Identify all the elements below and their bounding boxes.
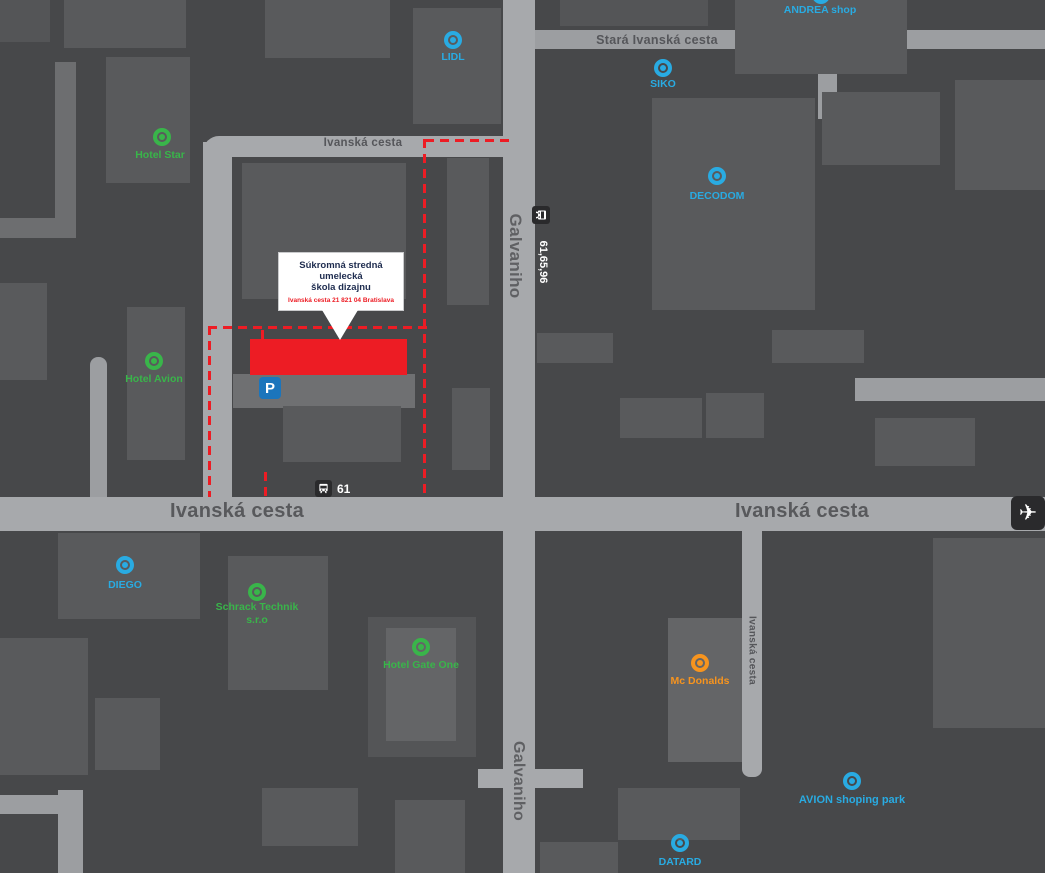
building-diego xyxy=(58,533,200,619)
road-top-left-horizontal xyxy=(0,218,76,238)
map-canvas: Stará Ivanská cesta Ivanská cesta Ivansk… xyxy=(0,0,1045,873)
building-decodom xyxy=(652,98,815,310)
road-top-right-horizontal xyxy=(855,378,1045,401)
route-dash-top xyxy=(425,139,513,142)
building xyxy=(395,800,465,873)
building xyxy=(95,698,160,770)
parking-icon: P xyxy=(259,377,281,399)
building xyxy=(106,57,190,183)
bus-icon xyxy=(318,483,329,494)
building xyxy=(265,0,390,58)
building xyxy=(875,418,975,466)
school-callout-title-line1: Súkromná stredná umelecká xyxy=(279,260,403,282)
poi-marker-mcdonalds xyxy=(691,654,709,672)
poi-marker-lidl xyxy=(444,31,462,49)
road-label-ivanska-main-left: Ivanská cesta xyxy=(137,500,337,523)
building xyxy=(772,330,864,363)
poi-label-mcdonalds: Mc Donalds xyxy=(630,675,770,688)
poi-label-schrack: Schrack Technik xyxy=(187,601,327,614)
road-label-galvaniho-bottom: Galvaniho xyxy=(509,721,527,841)
building xyxy=(64,0,186,48)
route-dash-middle xyxy=(208,326,427,329)
poi-label-decodom: DECODOM xyxy=(647,190,787,203)
building xyxy=(283,406,401,462)
road-label-ivanska-main-right: Ivanská cesta xyxy=(702,500,902,523)
poi-marker-datard xyxy=(671,834,689,852)
building xyxy=(560,0,708,26)
building xyxy=(447,158,489,305)
road-branch-east xyxy=(535,769,583,788)
building xyxy=(452,388,490,470)
route-dash-left xyxy=(208,326,211,497)
route-dash-right xyxy=(423,139,426,497)
poi-marker-hotel-star xyxy=(153,128,171,146)
school-building-highlight xyxy=(250,339,407,375)
poi-label-hotel-avion: Hotel Avion xyxy=(84,373,224,386)
road-label-galvaniho-top: Galvaniho xyxy=(505,191,525,321)
building xyxy=(540,842,618,873)
bus-icon xyxy=(535,209,547,221)
building-mcdonalds xyxy=(668,618,742,762)
school-callout: Súkromná stredná umelecká škola dizajnu … xyxy=(278,252,404,311)
poi-label-andrea-shop: ANDREA shop xyxy=(750,4,890,17)
road-top-left-vertical xyxy=(55,62,76,222)
building xyxy=(0,638,88,775)
poi-marker-siko xyxy=(654,59,672,77)
building xyxy=(0,283,47,380)
road-branch-west xyxy=(478,769,503,788)
road-label-stara-ivanska: Stará Ivanská cesta xyxy=(557,33,757,47)
road-label-ivanska-top: Ivanská cesta xyxy=(293,137,433,149)
poi-label-datard: DATARD xyxy=(610,856,750,869)
poi-label-schrack-sro: s.r.o xyxy=(187,614,327,627)
poi-label-lidl: LIDL xyxy=(383,51,523,64)
school-callout-address: Ivanská cesta 21 821 04 Bratislava xyxy=(279,297,403,304)
poi-label-hotel-star: Hotel Star xyxy=(90,149,230,162)
building-datard xyxy=(618,788,740,840)
building xyxy=(822,92,940,165)
building xyxy=(933,538,1045,728)
bus-stop-badge xyxy=(315,480,332,497)
school-callout-pointer xyxy=(322,310,358,340)
poi-marker-hotel-gate-one xyxy=(412,638,430,656)
road-bottom-left-vertical xyxy=(58,790,83,873)
poi-marker-hotel-avion xyxy=(145,352,163,370)
bus-routes-numbers: 61,65,96 xyxy=(533,222,549,302)
school-callout-title-line2: škola dizajnu xyxy=(279,282,403,293)
route-dash-entry-top xyxy=(261,330,264,344)
poi-label-avion-shoping-park: AVION shoping park xyxy=(782,794,922,807)
building xyxy=(0,0,50,42)
building-lidl xyxy=(413,8,501,124)
poi-label-hotel-gate-one: Hotel Gate One xyxy=(351,659,491,672)
poi-marker-decodom xyxy=(708,167,726,185)
poi-label-diego: DIEGO xyxy=(55,579,195,592)
building xyxy=(955,80,1045,190)
poi-marker-avion-shoping-park xyxy=(843,772,861,790)
poi-marker-schrack xyxy=(248,583,266,601)
road-bottom-left-horizontal xyxy=(0,795,60,814)
bus-stop-number: 61 xyxy=(337,482,350,496)
route-dash-entry-bottom xyxy=(264,472,267,497)
building xyxy=(620,398,702,438)
building xyxy=(706,393,764,438)
poi-label-siko: SIKO xyxy=(593,78,733,91)
building xyxy=(537,333,613,363)
building xyxy=(262,788,358,846)
poi-marker-diego xyxy=(116,556,134,574)
airport-icon: ✈ xyxy=(1011,496,1045,530)
